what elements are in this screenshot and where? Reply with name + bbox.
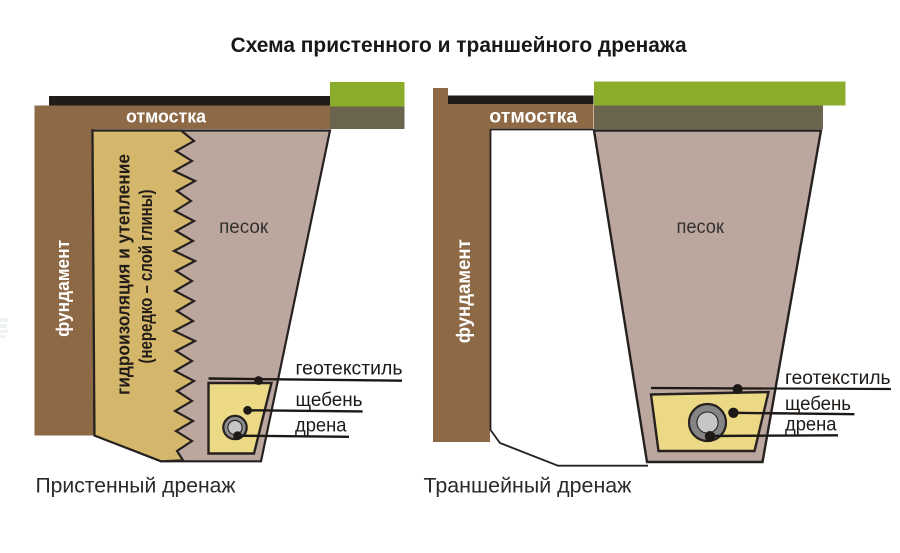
svg-text:(нередко – слой глины): (нередко – слой глины) [135, 190, 156, 364]
svg-text:дрена: дрена [785, 414, 837, 436]
svg-text:дрена: дрена [295, 415, 347, 437]
svg-text:Пристенный дренаж: Пристенный дренаж [36, 474, 237, 498]
svg-text:геотекстиль: геотекстиль [785, 367, 891, 389]
svg-text:отмостка: отмостка [126, 107, 207, 127]
svg-text:отмостка: отмостка [489, 107, 577, 128]
svg-text:геотекстиль: геотекстиль [296, 358, 403, 380]
svg-text:щебень: щебень [296, 389, 363, 411]
svg-text:гидроизоляция и утепление: гидроизоляция и утепление [113, 154, 134, 395]
svg-text:фундамент: фундамент [454, 239, 475, 343]
svg-text:песок: песок [219, 217, 269, 238]
svg-text:песок: песок [676, 216, 724, 238]
svg-text:Схема пристенного и траншейног: Схема пристенного и траншейного дренажа [231, 33, 688, 57]
svg-text:Траншейный дренаж: Траншейный дренаж [424, 474, 633, 498]
svg-text:фундамент: фундамент [53, 240, 73, 337]
svg-text:щебень: щебень [785, 393, 851, 415]
